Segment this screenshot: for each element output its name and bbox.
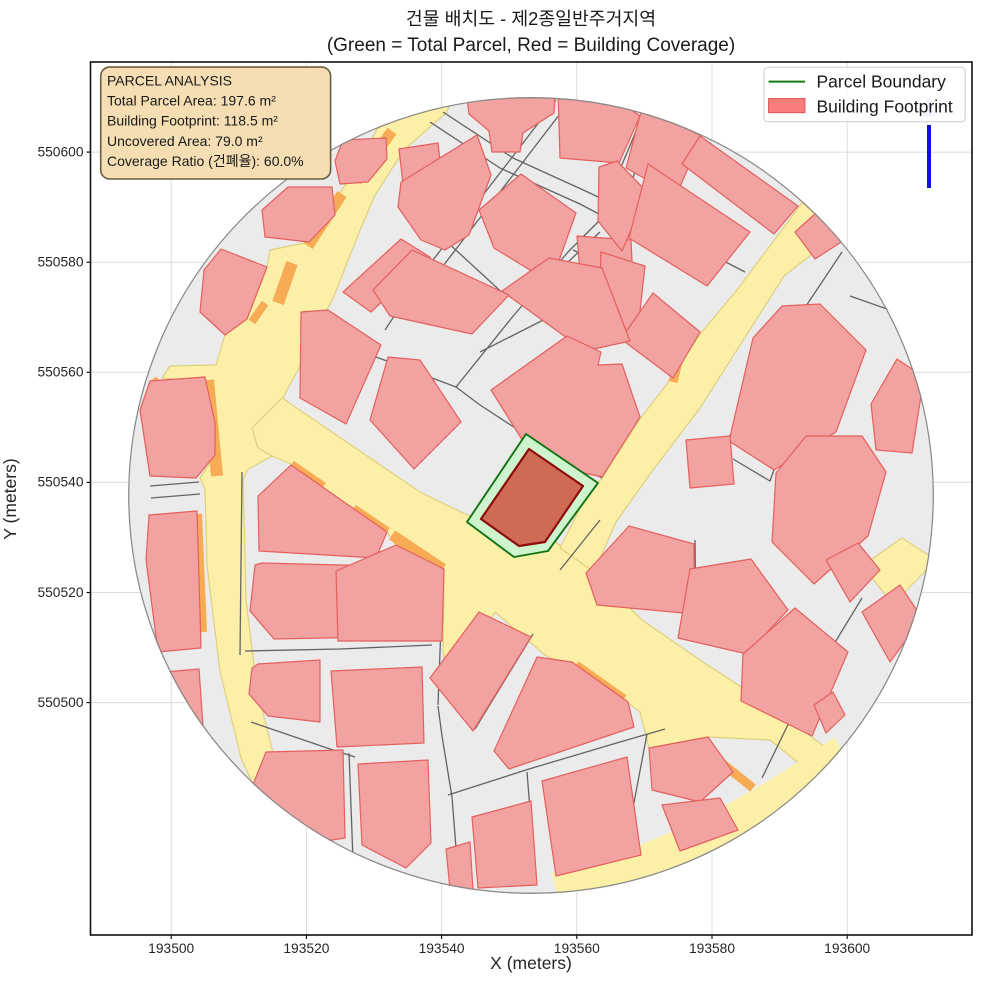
svg-text:Coverage Ratio (건폐율): 60.0%: Coverage Ratio (건폐율): 60.0% [107, 153, 304, 169]
svg-text:Building Footprint: 118.5 m²: Building Footprint: 118.5 m² [107, 113, 278, 129]
svg-text:193540: 193540 [419, 941, 465, 956]
svg-text:550540: 550540 [37, 475, 83, 490]
svg-text:Building Footprint: Building Footprint [817, 97, 953, 117]
svg-text:193500: 193500 [148, 941, 194, 956]
svg-text:193580: 193580 [689, 941, 735, 956]
svg-text:Total Parcel Area: 197.6 m²: Total Parcel Area: 197.6 m² [107, 93, 276, 109]
svg-text:550560: 550560 [37, 365, 83, 380]
svg-text:550600: 550600 [37, 144, 83, 159]
svg-text:550580: 550580 [37, 255, 83, 270]
svg-text:PARCEL ANALYSIS: PARCEL ANALYSIS [107, 73, 232, 89]
svg-text:(Green = Total Parcel, Red = B: (Green = Total Parcel, Red = Building Co… [327, 35, 735, 56]
svg-text:Y (meters): Y (meters) [0, 458, 20, 539]
svg-text:550520: 550520 [37, 585, 83, 600]
svg-text:X (meters): X (meters) [490, 953, 572, 973]
svg-text:건물 배치도 - 제2종일반주거지역: 건물 배치도 - 제2종일반주거지역 [406, 8, 656, 29]
svg-text:550500: 550500 [37, 695, 83, 710]
svg-text:193520: 193520 [283, 941, 329, 956]
svg-text:193600: 193600 [824, 941, 870, 956]
svg-text:Parcel Boundary: Parcel Boundary [817, 71, 947, 91]
svg-text:Uncovered Area: 79.0 m²: Uncovered Area: 79.0 m² [107, 133, 263, 149]
